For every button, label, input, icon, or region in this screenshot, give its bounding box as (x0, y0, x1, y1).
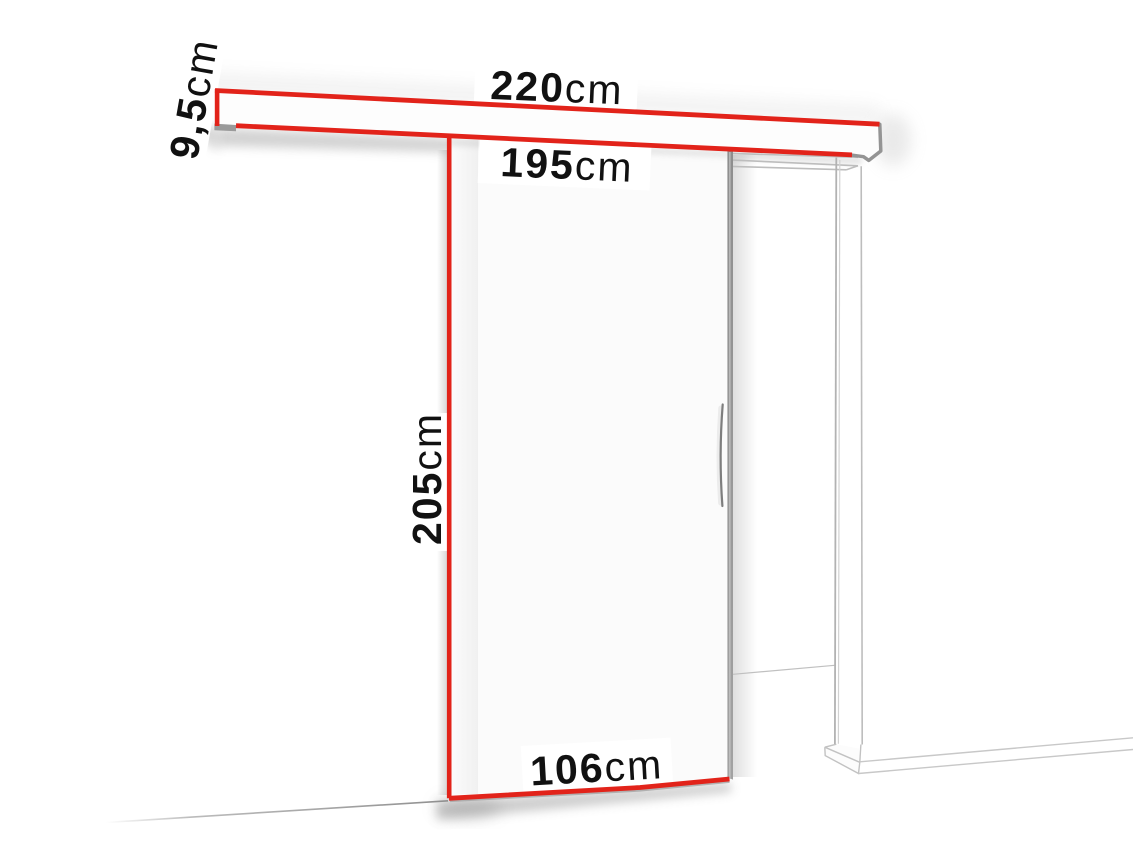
svg-text:205cm: 205cm (404, 412, 450, 545)
svg-text:195cm: 195cm (500, 139, 635, 191)
